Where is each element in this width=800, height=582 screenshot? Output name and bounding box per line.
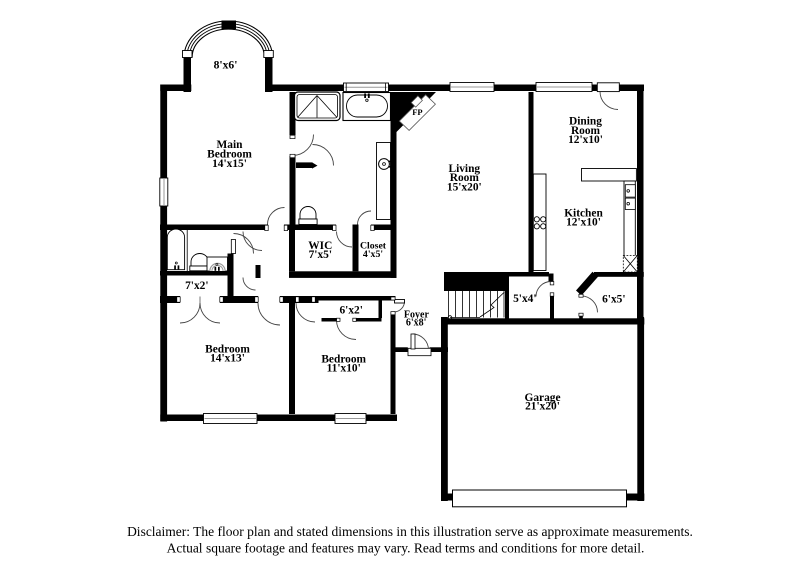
svg-text:14'x15': 14'x15' <box>212 158 247 170</box>
svg-text:7'x5': 7'x5' <box>309 249 332 261</box>
svg-text:6'x2': 6'x2' <box>339 305 362 317</box>
svg-text:Actual square footage and feat: Actual square footage and features may v… <box>167 540 645 555</box>
svg-text:8'x6': 8'x6' <box>214 59 238 72</box>
svg-text:FP: FP <box>412 107 422 117</box>
svg-text:6'x5': 6'x5' <box>602 294 625 306</box>
svg-text:12'x10': 12'x10' <box>566 217 601 229</box>
svg-text:14'x13': 14'x13' <box>210 353 245 365</box>
svg-text:15'x20': 15'x20' <box>447 182 482 194</box>
svg-text:11'x10': 11'x10' <box>327 363 361 375</box>
svg-text:7'x2': 7'x2' <box>185 280 208 292</box>
svg-text:21'x20': 21'x20' <box>525 401 560 413</box>
svg-text:4'x5': 4'x5' <box>363 249 383 260</box>
svg-text:5'x4': 5'x4' <box>513 293 536 305</box>
svg-text:Disclaimer: The floor plan and: Disclaimer: The floor plan and stated di… <box>127 524 693 539</box>
svg-text:12'x10': 12'x10' <box>568 134 603 146</box>
svg-text:6'x8': 6'x8' <box>406 317 427 328</box>
